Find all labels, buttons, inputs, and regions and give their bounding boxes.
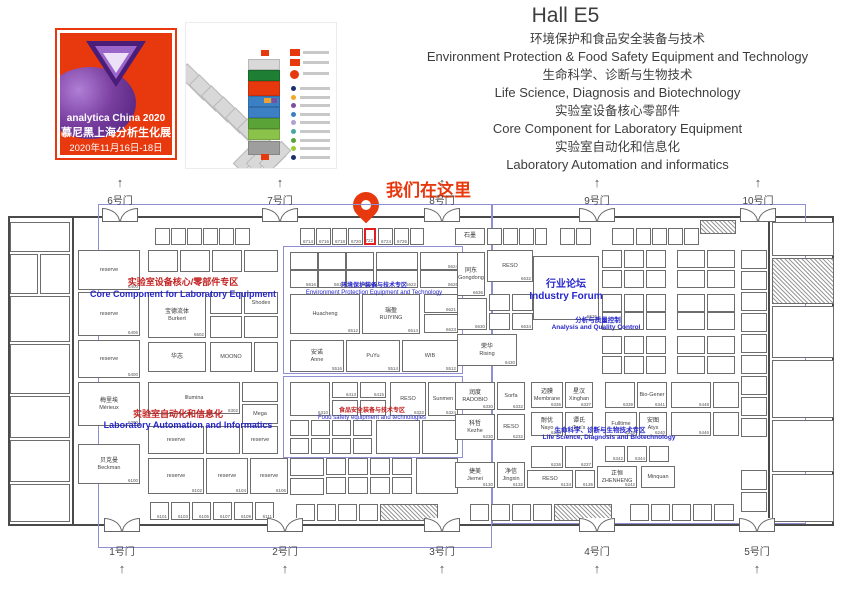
booth-number: 6716 [319,239,329,244]
booth [10,222,70,252]
booth [646,250,666,268]
booth-name-en: Sorfa [504,393,517,399]
booth: 5344 [627,446,647,462]
booth: 瑞盈RUIYING6514 [362,294,420,334]
booth-number: 6339 [623,402,633,407]
booth-name-en: MOONO [220,354,241,360]
booth-number: 6332 [513,404,523,409]
booth [672,504,691,521]
booth [210,316,242,338]
booth [652,228,667,245]
gate-arrow-icon: ↑ [282,562,289,575]
booth: RESO6632 [487,250,533,282]
booth-name-zh: 星汉 [573,389,585,396]
zone-label: Core Component for Laboratory Equipment [90,290,276,299]
booth [290,420,309,436]
booth: 迈膜Membrane6336 [531,382,563,408]
floor-plan: 我们在这里 6714671667186720672267246726石墨rese… [0,0,844,608]
gate-arrow-icon: ↑ [439,562,446,575]
booth [519,228,534,245]
gate-door-icon [104,518,140,532]
booth [392,477,412,494]
booth [40,254,70,294]
booth-number: 5514 [388,366,398,371]
booth: 6136 [575,470,595,488]
booth [353,420,372,436]
booth-name-en: Bio-Gener [639,392,664,398]
door-leaf-icon [102,208,120,222]
booth [254,342,278,372]
booth: RESO6232 [497,414,525,440]
booth [235,228,250,245]
booth: 6103 [171,502,190,520]
booth-name-en: reserve [260,473,278,479]
booth [533,504,552,521]
booth-number: 6104 [236,488,246,493]
booth-name-en: reserve [100,356,118,362]
booth [244,250,278,272]
gate-label: 5号门 [744,547,770,558]
booth: 5448 [671,382,711,408]
booth [346,252,374,270]
booth [332,420,351,436]
booth: 荣华Rising6430 [457,334,517,366]
gate-arrow-icon: ↑ [277,176,284,189]
booth-number: 6632 [521,276,531,281]
gate-door-icon [424,208,460,222]
booth [714,504,734,521]
gate-arrow-icon: ↑ [755,176,762,189]
door-leaf-icon [104,518,122,532]
booth: 6718 [332,228,347,245]
booth-number: 6621 [446,307,456,312]
booth-number: 6230 [483,434,493,439]
gate-arrow-icon: ↑ [594,176,601,189]
booth-name-en: PuYu [366,353,379,359]
booth-number: 6722 [364,238,373,243]
booth [741,271,767,290]
booth-name-en: WIB [425,353,435,359]
booth-name-zh: 安诺 [311,350,323,357]
booth: 6714 [300,228,315,245]
booth-number: 6107 [220,514,230,519]
booth [10,254,38,294]
gate-label: 3号门 [429,547,455,558]
booth [741,397,767,416]
booth-name-en: Huacheng [312,311,337,317]
booth [560,228,575,245]
booth-number: 6718 [335,239,345,244]
booth [359,504,378,521]
zone-label: Industry Forum [529,292,602,303]
booth: 同东Gongdong6636 [457,252,485,296]
booth [242,382,278,402]
booth: 5446 [671,412,711,436]
booth-name-en: reserve [251,437,269,443]
booth-name-zh: 迈膜 [541,389,553,396]
booth: 6339 [605,382,635,408]
booth: reserve6106 [250,458,288,494]
booth-name-en: reserve [167,437,185,443]
booth [668,228,683,245]
booth: 净信Jingxin6132 [497,462,525,488]
booth [741,492,767,512]
booth-number: 5344 [635,456,645,461]
booth: Huacheng6512 [290,294,360,334]
booth-number: 5516 [332,366,342,371]
gate-arrow-icon: ↑ [119,562,126,575]
booth-number: 6105 [199,514,209,519]
door-leaf-icon [757,518,775,532]
booth-number: 5448 [699,402,709,407]
booth [707,312,735,330]
door-leaf-icon [424,208,442,222]
booth [10,396,70,438]
booth [290,458,324,476]
gate-door-icon [740,208,776,222]
door-leaf-icon [122,518,140,532]
booth: WIB5512 [402,340,458,372]
booth-name-en: Anne [311,357,324,363]
booth [693,504,712,521]
booth [376,252,418,270]
booth-number: 6232 [513,434,523,439]
booth: Minquan [641,466,675,488]
booth-number: 6430 [505,360,515,365]
booth-number: 5512 [446,366,456,371]
booth: reserve6104 [206,458,248,494]
gate-arrow-icon: ↑ [117,176,124,189]
booth [353,438,372,454]
booth: 6236 [531,446,563,468]
booth: 6101 [150,502,169,520]
booth [290,438,309,454]
booth-name-en: Rising [479,351,494,357]
booth-number: 6109 [241,514,251,519]
booth-number: 6623 [446,327,456,332]
booth: Bio-Gener6341 [637,382,667,408]
booth-number: 6237 [581,462,591,467]
booth-number: 5616 [306,282,316,287]
booth [624,270,644,288]
door-leaf-icon [442,518,460,532]
booth [392,458,412,475]
booth-number: 6302 [228,408,238,413]
booth [677,294,705,312]
booth [348,477,368,494]
booth [713,412,739,436]
booth-number: 6102 [192,488,202,493]
booth [602,270,622,288]
door-leaf-icon [579,208,597,222]
gate-door-icon [262,208,298,222]
booth-name-zh: 梅里埃 [100,398,118,405]
gate-door-icon [267,518,303,532]
booth [290,478,324,495]
door-leaf-icon [280,208,298,222]
booth [630,504,649,521]
booth [10,296,70,342]
booth-name-zh: 耐优 [541,418,553,425]
booth: 6716 [316,228,331,245]
booth-name-en: Jiemei [467,476,483,482]
booth: 星汉Xinghan6337 [565,382,593,408]
booth [707,336,735,354]
booth-number: 6330 [483,404,493,409]
booth-number: 5622 [406,282,416,287]
booth-name-en: Shodex [252,300,271,306]
booth-name-en: RESO [502,263,518,269]
booth [772,474,834,522]
booth [677,356,705,374]
booth [612,228,634,245]
booth-number: 6103 [178,514,188,519]
booth-name-zh: 捷美 [469,469,481,476]
booth: 6630 [457,298,487,330]
booth-name-en: RADOBIO [462,397,487,403]
booth-name-en: Membrane [534,396,560,402]
booth-number: 5242 [625,482,635,487]
booth-name-en: Kezhe [467,428,483,434]
booth-number: 6101 [157,514,167,519]
booth [290,252,318,270]
gate-door-icon [739,518,775,532]
booth [772,222,834,256]
booth: 5616 [290,270,318,288]
booth [624,294,644,312]
gate-label: 6号门 [107,196,133,207]
booth: 6413 [332,382,358,398]
booth [311,420,330,436]
booth: 6634 [512,313,533,330]
booth-number: 6720 [351,239,361,244]
booth-name-en: Sunmen [433,396,454,402]
booth-number: 6413 [346,392,356,397]
booth-number: 6636 [473,290,483,295]
booth-name-en: reserve [100,311,118,317]
booth: 贝克曼Beckman6100 [78,444,140,484]
booth-number: 6415 [374,392,384,397]
booth-name-en: reserve [167,473,185,479]
booth: 华志 [148,342,206,372]
booth-number: 6406 [128,330,138,335]
booth [646,270,666,288]
booth [332,438,351,454]
booth: 5626 [420,270,460,288]
booth-name-en: reserve [218,473,236,479]
booth [713,382,739,408]
booth [311,438,330,454]
booth: 正恒ZHENHENG5242 [597,466,637,488]
booth [422,420,458,454]
booth [491,504,510,521]
booth-name-en: Illumina [185,395,204,401]
booth [624,356,644,374]
booth [677,250,705,268]
zone-label: 行业论坛 [546,280,586,291]
booth-number: 6714 [303,239,313,244]
booth-number: 6136 [583,482,593,487]
gate-door-icon [579,208,615,222]
gate-label: 8号门 [429,196,455,207]
booth-number: 6106 [276,488,286,493]
booth [244,316,278,338]
door-leaf-icon [442,208,460,222]
booth-name-zh: 石墨 [464,233,476,240]
booth [219,228,234,245]
booth: 6724 [378,228,393,245]
booth [416,458,458,494]
booth-name-en: Gongdong [458,275,484,281]
booth-name-zh: 科哲 [469,421,481,428]
booth-number: 5400 [128,372,138,377]
booth [180,250,210,272]
booth-name-zh: 宝德流体 [165,309,189,316]
booth-name-en: RESO [542,476,558,482]
gate-label: 10号门 [742,196,773,207]
booth [535,228,547,245]
booth [646,336,666,354]
booth [487,228,502,245]
booth [576,228,591,245]
booth [651,504,670,521]
booth-number: 6336 [551,402,561,407]
booth-name-zh: 安图 [647,418,659,425]
booth [741,292,767,311]
booth-name-en: reserve [100,267,118,273]
floorplan-page: analytica China 2020 慕尼黑上海分析生化展 2020年11月… [0,0,844,608]
booth: 6726 [394,228,409,245]
booth [10,484,70,522]
booth: 5624 [420,252,460,270]
booth-number: 6130 [483,482,493,487]
booth-name-en: Mega [253,411,267,417]
booth: 石墨 [455,228,485,245]
booth [148,250,178,272]
booth [326,458,346,475]
booth [602,336,622,354]
booth [317,504,336,521]
booth: 6107 [213,502,232,520]
door-leaf-icon [758,208,776,222]
booth [677,270,705,288]
gate-label: 9号门 [584,196,610,207]
gate-arrow-icon: ↑ [754,562,761,575]
booth-number: 6512 [348,328,358,333]
booth [772,258,834,304]
booth: MOONO [210,342,252,372]
booth-number: 6341 [655,402,665,407]
booth-name-en: Burkert [168,316,186,322]
booth-name-en: RESO [400,396,416,402]
booth [602,294,622,312]
booth: 润度RADOBIO6330 [455,382,495,410]
booth-name-zh: 润度 [469,390,481,397]
booth-number: 6100 [128,478,138,483]
booth [707,250,735,268]
booth [489,294,510,311]
booth-number: 5342 [613,456,623,461]
booth-number: 6337 [581,402,591,407]
booth [646,356,666,374]
booth [376,420,420,454]
booth [212,250,242,272]
booth-number: 6236 [551,462,561,467]
booth [700,220,736,234]
booth-number: 6502 [194,332,204,337]
door-leaf-icon [597,518,615,532]
booth: 6722 [364,228,376,245]
booth [489,313,510,330]
zone-label: Food safety equipment and technologies [318,415,426,421]
booth [741,250,767,269]
booth: 安诺Anne5516 [290,340,344,372]
booth-name-en: RESO [503,424,519,430]
booth [370,477,390,494]
booth: 6415 [360,382,386,398]
booth-number: 6134 [561,482,571,487]
booth [171,228,186,245]
booth [772,306,834,358]
booth: 6105 [192,502,211,520]
zone-label: 食品安全装备与技术专区 [339,408,405,414]
booth-number: 6724 [381,239,391,244]
booth: 捷美Jiemei6130 [455,462,495,488]
gate-label: 7号门 [267,196,293,207]
booth [772,360,834,418]
booth [741,470,767,490]
gate-door-icon [424,518,460,532]
booth-name-zh: 正恒 [611,471,623,478]
booth-name-zh: 华志 [171,354,183,361]
booth [636,228,651,245]
booth [410,228,424,245]
booth [707,270,735,288]
door-leaf-icon [740,208,758,222]
door-leaf-icon [267,518,285,532]
gate-door-icon [579,518,615,532]
zone-label: Laboratory Automation and Informatics [104,421,273,430]
booth [684,228,699,245]
booth-name-en: Mérieux [99,405,119,411]
booth: 5342 [605,446,625,462]
gate-arrow-icon: ↑ [439,176,446,189]
gate-door-icon [102,208,138,222]
booth-number: 6726 [397,239,407,244]
booth: 6109 [234,502,253,520]
booth: reserve6102 [148,458,204,494]
booth-name-en: RUIYING [380,315,403,321]
booth-number: 6132 [513,482,523,487]
booth-name-zh: 瑞盈 [385,308,397,315]
door-leaf-icon [262,208,280,222]
booth [741,418,767,437]
booth [602,356,622,374]
booth: Sunmen6324 [428,382,458,416]
booth-number: 5446 [699,430,709,435]
booth [741,355,767,374]
booth [649,446,669,462]
booth-name-en: Jingxin [502,476,519,482]
booth-name-zh: 荣华 [481,344,493,351]
booth [624,250,644,268]
booth [348,458,368,475]
door-leaf-icon [120,208,138,222]
booth-number: 6514 [408,328,418,333]
booth [503,228,518,245]
booth [338,504,357,521]
booth [646,294,666,312]
